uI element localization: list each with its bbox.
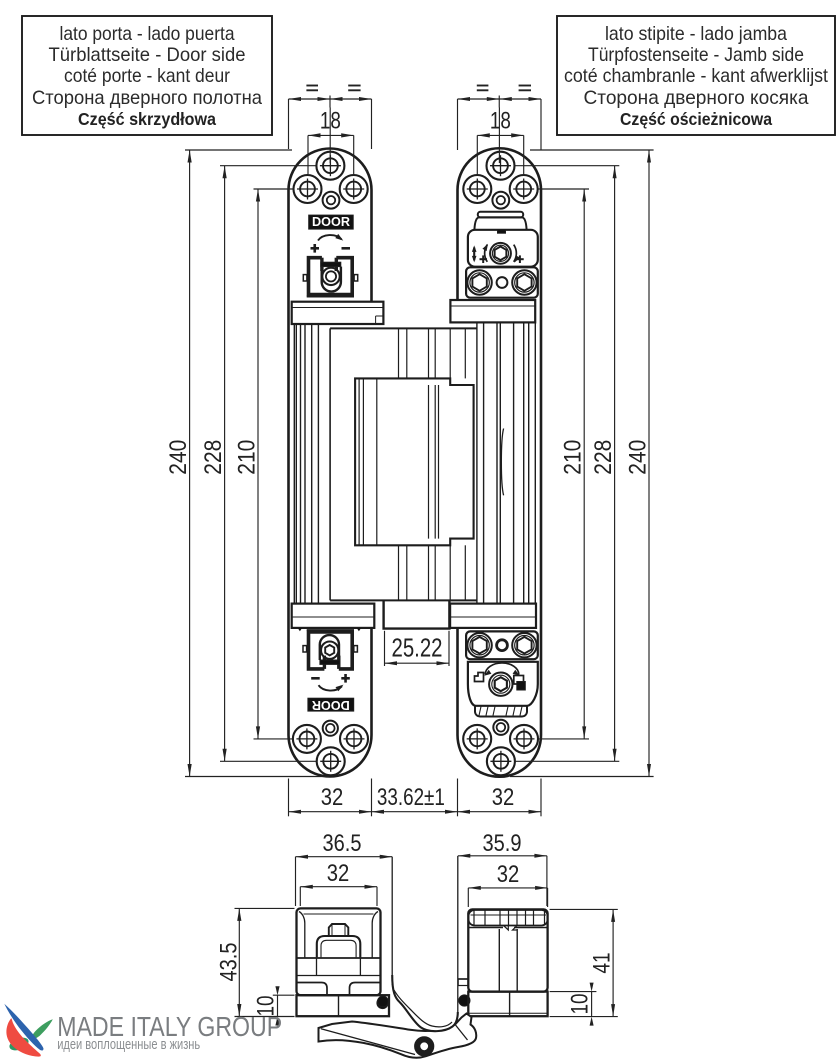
svg-text:lato porta - lado puerta: lato porta - lado puerta <box>60 23 235 45</box>
svg-text:210: 210 <box>560 440 587 475</box>
svg-text:Сторона дверного полотна: Сторона дверного полотна <box>32 87 262 109</box>
svg-text:33.62±1: 33.62±1 <box>377 784 445 811</box>
svg-text:DOOR: DOOR <box>312 698 350 712</box>
svg-text:210: 210 <box>234 440 261 475</box>
svg-text:32: 32 <box>497 861 520 888</box>
svg-text:32: 32 <box>492 784 515 811</box>
svg-text:lato stipite - lado jamba: lato stipite - lado jamba <box>605 23 787 45</box>
svg-text:25.22: 25.22 <box>392 633 443 663</box>
svg-text:32: 32 <box>321 784 344 811</box>
svg-text:10: 10 <box>567 994 594 1015</box>
svg-text:228: 228 <box>590 440 617 475</box>
svg-text:240: 240 <box>165 440 192 475</box>
svg-text:coté chambranle - kant afwerkl: coté chambranle - kant afwerklijst <box>564 65 829 87</box>
svg-text:240: 240 <box>625 440 652 475</box>
svg-text:Türblattseite - Door side: Türblattseite - Door side <box>49 44 246 66</box>
svg-text:18: 18 <box>490 107 511 134</box>
svg-text:43.5: 43.5 <box>215 943 242 982</box>
svg-text:coté porte - kant deur: coté porte - kant deur <box>64 65 230 87</box>
svg-text:DOOR: DOOR <box>312 215 350 229</box>
svg-text:Część ościeżnicowa: Część ościeżnicowa <box>620 109 772 129</box>
svg-text:идеи воплощенные в жизнь: идеи воплощенные в жизнь <box>57 1037 200 1053</box>
svg-text:36.5: 36.5 <box>323 830 362 857</box>
svg-text:18: 18 <box>320 107 341 134</box>
svg-text:35.9: 35.9 <box>483 830 522 857</box>
svg-text:32: 32 <box>327 860 350 887</box>
svg-text:Türpfostenseite - Jamb side: Türpfostenseite - Jamb side <box>588 44 804 66</box>
svg-text:41: 41 <box>589 953 616 974</box>
svg-text:Сторона дверного косяка: Сторона дверного косяка <box>584 87 809 109</box>
svg-text:Część skrzydłowa: Część skrzydłowa <box>78 109 216 129</box>
svg-text:228: 228 <box>200 440 227 475</box>
